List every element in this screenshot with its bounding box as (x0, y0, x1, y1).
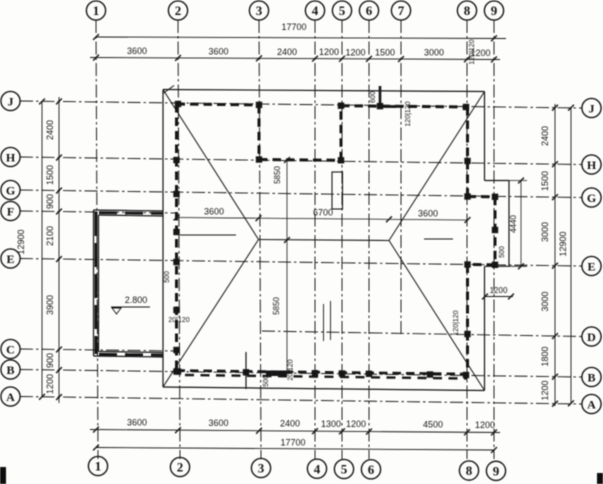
svg-text:1300: 1300 (321, 419, 341, 429)
svg-text:3: 3 (258, 461, 265, 476)
svg-text:9: 9 (491, 3, 498, 18)
svg-text:3600: 3600 (208, 418, 228, 428)
svg-text:G: G (6, 183, 15, 197)
svg-text:1200: 1200 (540, 380, 550, 400)
svg-text:20|120: 20|120 (288, 359, 295, 380)
svg-text:H: H (587, 158, 597, 172)
svg-text:1200: 1200 (45, 374, 55, 394)
svg-text:A: A (6, 390, 15, 404)
svg-text:2: 2 (175, 3, 182, 18)
svg-text:17700: 17700 (281, 22, 306, 32)
svg-text:17700: 17700 (280, 438, 305, 448)
svg-text:3: 3 (256, 3, 263, 18)
svg-text:1500: 1500 (45, 165, 55, 185)
svg-text:2: 2 (177, 460, 184, 475)
svg-text:12900: 12900 (16, 229, 26, 254)
svg-text:C: C (6, 342, 15, 356)
svg-text:500: 500 (164, 271, 171, 283)
svg-text:2400: 2400 (45, 120, 55, 140)
svg-text:3000: 3000 (540, 291, 550, 311)
svg-text:F: F (7, 204, 14, 218)
svg-text:5: 5 (339, 3, 346, 18)
svg-text:3600: 3600 (127, 417, 147, 427)
svg-text:B: B (6, 363, 14, 377)
svg-text:3600: 3600 (418, 209, 438, 219)
svg-text:4: 4 (314, 461, 321, 476)
svg-text:500: 500 (499, 246, 506, 258)
svg-text:500: 500 (263, 375, 270, 387)
svg-text:8: 8 (464, 3, 471, 18)
svg-text:3000: 3000 (540, 222, 550, 242)
svg-text:4500: 4500 (423, 420, 443, 430)
svg-text:5: 5 (341, 462, 348, 477)
svg-text:3900: 3900 (45, 295, 55, 315)
svg-text:6: 6 (368, 462, 375, 477)
svg-text:3600: 3600 (127, 46, 147, 56)
svg-text:A: A (587, 397, 596, 411)
svg-text:1200: 1200 (319, 47, 339, 57)
svg-text:600: 600 (370, 91, 377, 103)
svg-text:J: J (8, 94, 14, 108)
svg-text:1: 1 (93, 3, 100, 18)
svg-text:E: E (587, 259, 595, 273)
svg-text:5850: 5850 (273, 166, 282, 184)
svg-text:1200: 1200 (346, 419, 366, 429)
svg-text:4440: 4440 (509, 215, 518, 233)
svg-text:12900: 12900 (558, 231, 568, 256)
svg-text:120|120: 120|120 (469, 39, 476, 64)
svg-text:120|120: 120|120 (405, 101, 412, 126)
svg-text:120|120: 120|120 (453, 310, 460, 335)
svg-text:7: 7 (398, 3, 405, 18)
svg-text:9: 9 (493, 464, 500, 479)
svg-text:1200: 1200 (490, 286, 508, 295)
svg-text:1800: 1800 (540, 346, 550, 366)
svg-text:1: 1 (95, 459, 102, 474)
svg-text:G: G (587, 191, 596, 205)
svg-text:2.800: 2.800 (125, 295, 148, 305)
svg-text:6700: 6700 (313, 208, 333, 218)
svg-text:1500: 1500 (540, 171, 550, 191)
svg-text:3000: 3000 (424, 48, 444, 58)
svg-text:1500: 1500 (375, 47, 395, 57)
svg-text:1200: 1200 (345, 47, 365, 57)
svg-text:4: 4 (312, 3, 319, 18)
svg-text:8: 8 (466, 463, 473, 478)
svg-text:2100: 2100 (45, 226, 55, 246)
svg-text:D: D (587, 330, 596, 344)
svg-text:20|120: 20|120 (168, 317, 189, 324)
svg-text:2400: 2400 (277, 47, 297, 57)
svg-text:3600: 3600 (208, 47, 228, 57)
svg-text:H: H (6, 150, 16, 164)
svg-text:1200: 1200 (475, 420, 495, 430)
svg-text:2400: 2400 (280, 418, 300, 428)
svg-text:5850: 5850 (272, 297, 281, 315)
svg-text:6: 6 (366, 3, 373, 18)
svg-text:900: 900 (45, 353, 55, 368)
svg-text:3600: 3600 (204, 207, 224, 217)
svg-text:2400: 2400 (540, 126, 550, 146)
svg-text:J: J (589, 101, 595, 115)
svg-text:900: 900 (45, 194, 55, 209)
svg-text:B: B (587, 370, 595, 384)
svg-text:E: E (6, 252, 14, 266)
